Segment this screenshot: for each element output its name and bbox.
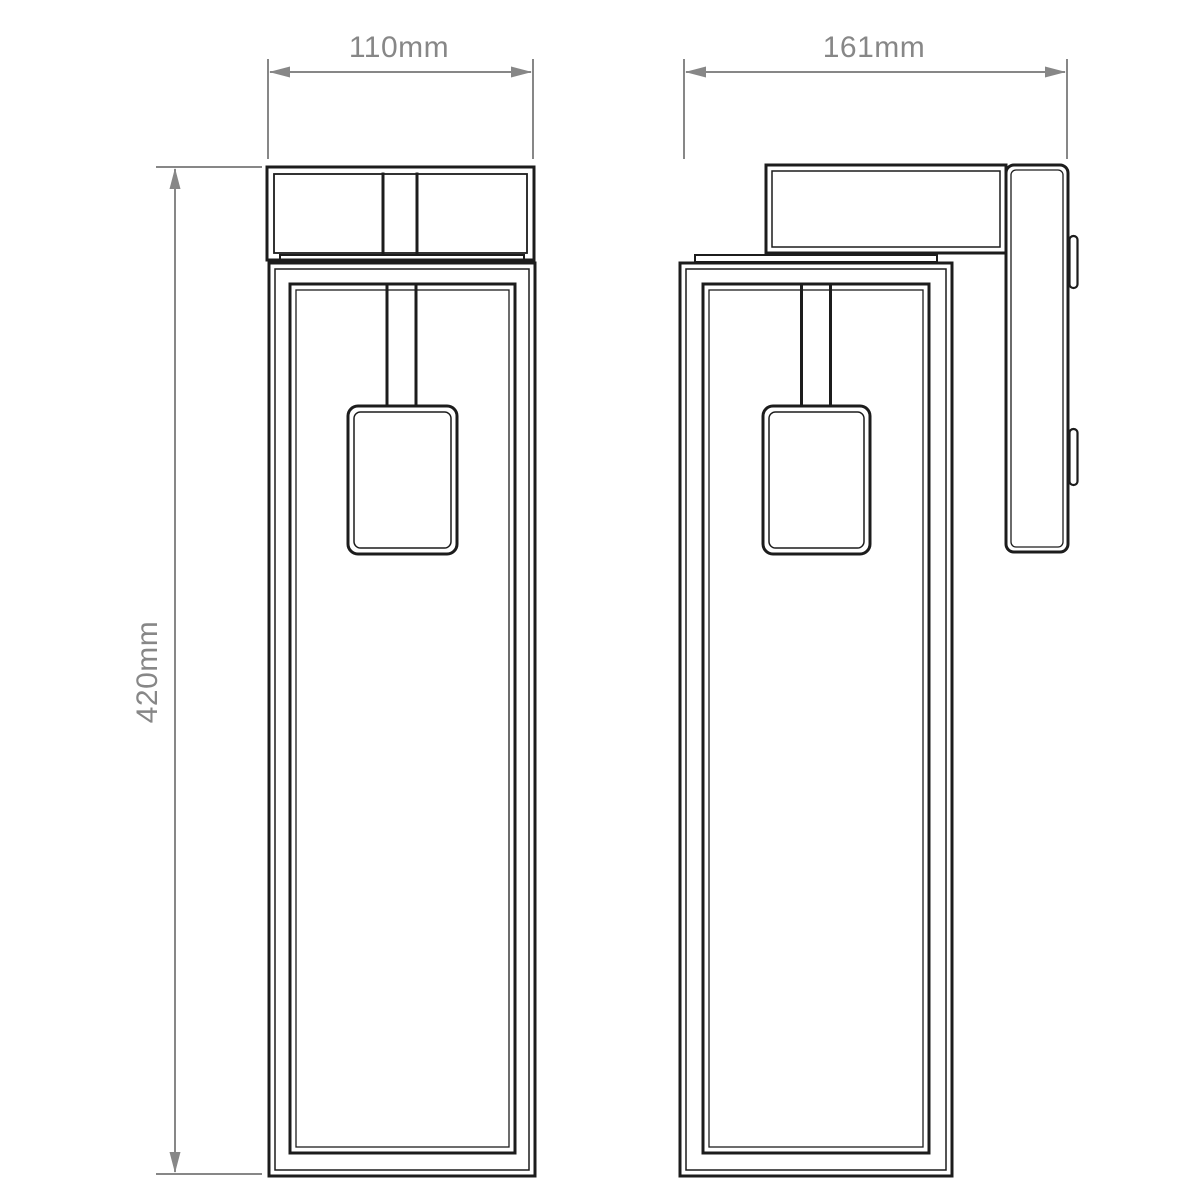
side-wall-plate-boss-top bbox=[1070, 236, 1078, 288]
side-glass-frame-outer bbox=[703, 284, 929, 1153]
wall-light-dimension-drawing: 110mm 161mm 420mm bbox=[0, 0, 1200, 1200]
side-body-inner-line bbox=[686, 269, 946, 1170]
side-wall-plate-boss-bottom bbox=[1070, 429, 1078, 485]
dimension-side-depth: 161mm bbox=[684, 31, 1067, 159]
arrow-up-icon bbox=[170, 168, 181, 189]
arrow-left-icon bbox=[269, 67, 290, 78]
arrow-left-icon bbox=[685, 67, 706, 78]
front-glass-frame-outer bbox=[290, 284, 515, 1153]
side-top-lip bbox=[695, 255, 937, 262]
arrow-down-icon bbox=[170, 1152, 181, 1173]
front-top-box-outer bbox=[267, 167, 534, 260]
side-top-arm-inner bbox=[772, 171, 1000, 247]
side-glass-frame-inner bbox=[709, 290, 923, 1147]
side-lampholder-outer bbox=[763, 406, 870, 554]
side-wall-plate-inner bbox=[1011, 170, 1063, 547]
side-lampholder-inner bbox=[769, 412, 864, 548]
technical-drawing-canvas: 110mm 161mm 420mm bbox=[0, 0, 1200, 1200]
front-lampholder-outer bbox=[348, 406, 457, 554]
dimension-height: 420mm bbox=[131, 167, 262, 1174]
dimension-front-width: 110mm bbox=[268, 31, 533, 159]
arrow-right-icon bbox=[1045, 67, 1066, 78]
height-label: 420mm bbox=[131, 621, 164, 724]
side-top-arm-outer bbox=[766, 165, 1006, 253]
side-wall-plate-outer bbox=[1006, 165, 1068, 552]
front-lampholder-inner bbox=[354, 412, 451, 548]
arrow-right-icon bbox=[511, 67, 532, 78]
front-body-inner-line bbox=[275, 269, 529, 1170]
front-width-label: 110mm bbox=[349, 31, 449, 64]
front-top-box-inner bbox=[274, 174, 527, 253]
side-view bbox=[680, 165, 1078, 1176]
side-body-outer bbox=[680, 263, 952, 1176]
side-depth-label: 161mm bbox=[823, 31, 926, 64]
front-glass-frame-inner bbox=[296, 290, 509, 1147]
front-view bbox=[267, 167, 535, 1176]
front-body-outer bbox=[269, 263, 535, 1176]
